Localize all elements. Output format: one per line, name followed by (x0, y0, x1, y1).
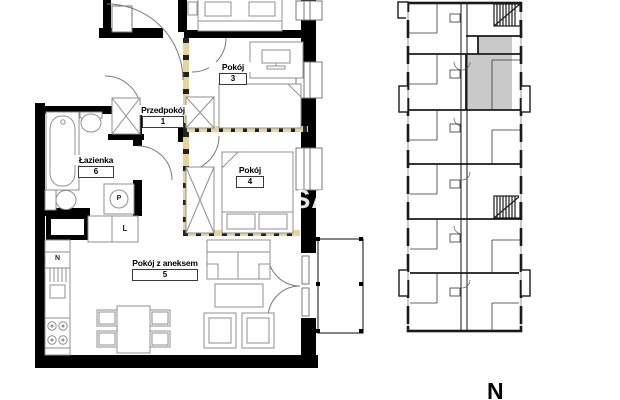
balcony-door-leaf-1 (302, 256, 309, 284)
balcony-door-arc-1 (268, 254, 300, 286)
room-number: 1 (142, 116, 184, 128)
bathtub (46, 112, 79, 190)
stove (45, 318, 70, 348)
room-number: 6 (78, 166, 114, 178)
kitchen-sink (50, 285, 65, 298)
room-label-lazienka: Łazienka 6 (72, 155, 120, 178)
staircase-middle (494, 196, 520, 218)
sofa (207, 240, 270, 279)
room-name: Pokój (209, 62, 257, 72)
wall-top-stub (178, 0, 187, 32)
room-label-pokoj-3: Pokój 3 (209, 62, 257, 85)
room-label-pokoj-4: Pokój 4 (226, 165, 274, 188)
wardrobe-pokoj-3 (186, 97, 214, 128)
desk-with-monitor (250, 42, 303, 78)
fridge-label: L (119, 224, 131, 233)
armchair-2 (242, 313, 274, 348)
bed-top-room (188, 0, 282, 31)
room-number: 4 (236, 176, 264, 188)
kitchen-cabinet-label: N (51, 255, 64, 262)
wall-hall-stub (108, 134, 144, 140)
room-label-pokoj-z-aneksem: Pokój z aneksem 5 (131, 258, 199, 281)
staircase-top (494, 4, 520, 26)
wardrobe-hallway (112, 98, 140, 134)
balcony (316, 237, 363, 333)
dining-table-chairs (97, 306, 170, 353)
balcony-door-leaf-2 (302, 288, 309, 316)
bed-pokoj-3 (219, 84, 301, 128)
sink (80, 112, 102, 132)
highlighted-unit-top (478, 36, 512, 54)
nightstand (188, 2, 197, 15)
highlighted-unit-main (466, 54, 512, 110)
shaft-entry (112, 6, 132, 32)
wall-bottom (35, 355, 318, 368)
armchair-1 (204, 313, 236, 348)
watermark-text: SA (293, 184, 331, 215)
shaft-inner (51, 219, 84, 235)
pokoj-4-door-arc (184, 136, 219, 171)
room-name: Przedpokój (137, 105, 189, 115)
wardrobe-pokoj-4 (186, 167, 214, 233)
north-indicator: N (487, 378, 504, 400)
coffee-table (215, 284, 263, 307)
toilet (45, 190, 76, 210)
room-name: Pokój z aneksem (131, 258, 199, 268)
window-top-room (296, 1, 322, 20)
floor-plan-page: Przedpokój 1 Pokój 3 Pokój 4 Pokój z ane… (0, 0, 620, 400)
room-name: Pokój (226, 165, 274, 175)
building-overview (398, 2, 530, 331)
bathroom-door-arc (138, 146, 172, 180)
wall-left (35, 103, 45, 368)
room-number: 3 (219, 73, 247, 85)
kitchen-counter-top (88, 216, 112, 242)
room-label-przedpokoj: Przedpokój 1 (137, 105, 189, 128)
room-number: 5 (132, 269, 198, 281)
room-name: Łazienka (72, 155, 120, 165)
washing-machine-label: P (113, 195, 125, 202)
